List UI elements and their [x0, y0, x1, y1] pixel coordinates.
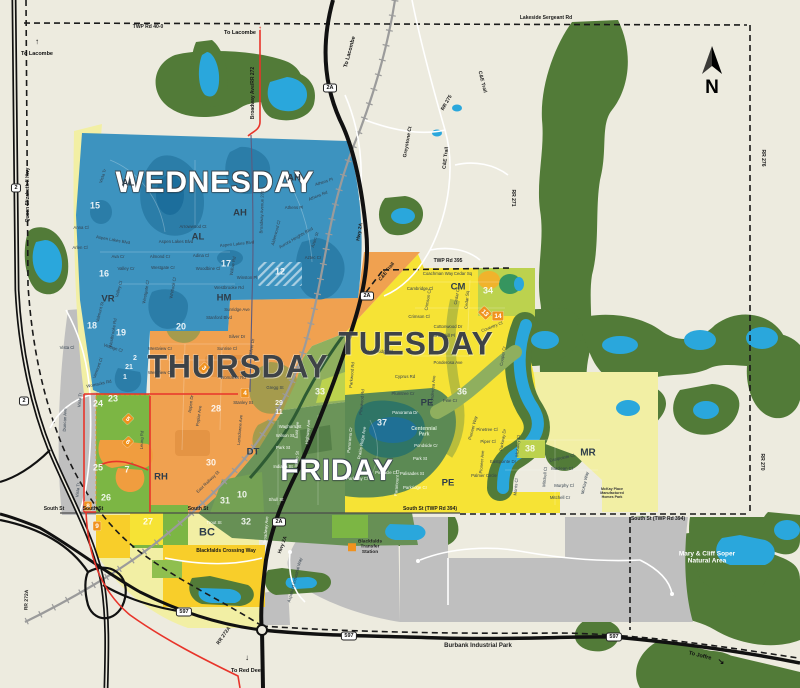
street-label: Womacks Rd — [220, 376, 245, 381]
street-label: Valmont St — [95, 301, 105, 322]
street-label: Prairie Ridge Cl — [363, 350, 393, 355]
road-label: RR 272A — [24, 590, 30, 611]
street-label: Gregg St — [266, 386, 283, 391]
street-label: Sunrise Cl — [217, 347, 237, 352]
zone-number: 28 — [211, 404, 221, 414]
direction-label: To Lacombe — [21, 51, 53, 57]
street-label: Palmer Circle — [471, 474, 497, 479]
street-label: Adina Cl — [193, 254, 209, 259]
arrow-glyph: ↑ — [258, 25, 262, 34]
day-zone-label: WEDNESDAY — [115, 166, 314, 198]
street-label: McAuley Cl — [515, 435, 522, 457]
zone-number: 19 — [116, 328, 126, 338]
road-label: Hwy 2A — [277, 536, 288, 555]
street-label: Valley Cl — [115, 280, 124, 297]
street-label: Cottonwood Dr — [434, 325, 463, 330]
zone-number: 29 — [275, 399, 283, 407]
street-label: Parkwood Rd — [349, 362, 356, 388]
zone-number: 20 — [176, 322, 186, 332]
transfer-station-icon — [348, 543, 356, 551]
street-label: Cedar Sq — [454, 272, 472, 277]
neighborhood-code: VR — [101, 294, 114, 304]
street-label: East Railway St — [196, 470, 221, 494]
street-label: Coachman Way — [423, 272, 453, 277]
street-label: Cedar Cr — [453, 287, 461, 305]
street-label: Sunridge Ave — [224, 308, 249, 313]
road-label: Broadway Ave/RR 272 — [250, 67, 255, 119]
zone-number: 37 — [377, 418, 387, 428]
zone-number: 2 — [133, 354, 137, 362]
street-label: Crimson Cl — [424, 289, 432, 311]
street-label: Almond Cr — [150, 255, 170, 260]
street-label: Trout St — [206, 521, 221, 526]
street-label: Stanford Blvd — [206, 316, 232, 321]
zone-number: 30 — [206, 458, 216, 468]
road-label: C&E Trail — [378, 262, 396, 283]
zone-number: 25 — [93, 463, 103, 473]
street-label: Pioneer Ave — [479, 450, 486, 473]
street-label: Mitchell Cr — [550, 496, 570, 501]
street-label: McKay Way — [580, 471, 589, 494]
street-label: Westbrooke Rd — [214, 286, 244, 291]
neighborhood-code: DT — [247, 447, 260, 457]
street-label: Womacks Rd — [86, 379, 112, 389]
street-label: Cedar Sq — [464, 291, 470, 309]
highway-shield: 2A — [360, 292, 374, 301]
street-label: Vintage Cl — [103, 343, 123, 354]
road-label: TWP Rd 395 — [434, 258, 463, 263]
arrow-glyph: ↘ — [718, 658, 725, 667]
street-label: Wilson St — [276, 434, 294, 439]
direction-label: To Red Deer — [231, 668, 263, 674]
street-label: Pioneer Way — [468, 416, 479, 441]
neighborhood-code: AL — [192, 232, 205, 242]
arrow-glyph: ↓ — [245, 654, 249, 663]
zone-number: 33 — [315, 387, 325, 397]
route-marker: 8 — [84, 501, 92, 510]
street-label: Woodbine Cl — [196, 267, 221, 272]
day-zone-label: FRIDAY — [280, 454, 393, 486]
map-labels: WEDNESDAYTHURSDAYTUESDAYFRIDAYALAHAHALVR… — [0, 0, 800, 688]
street-label: Vista Tr — [75, 483, 81, 498]
street-label: Athens Rd — [308, 190, 328, 202]
direction-label: To Lacombe — [343, 36, 357, 68]
direction-label: To Joffre — [688, 650, 712, 661]
neighborhood-code: PE — [442, 478, 455, 488]
street-label: Westview Cr — [148, 347, 172, 352]
street-label: Cambridge Cl — [407, 287, 433, 292]
street-label: Park St — [276, 446, 290, 451]
direction-label: To Lacombe — [224, 30, 256, 36]
street-label: Broadway Avenue 272 — [259, 190, 265, 233]
road-label: RR 270 — [759, 454, 764, 471]
street-label: Eastpointe Cl — [549, 453, 575, 463]
street-label: Maclean Cl — [551, 467, 573, 472]
street-label: Minto St — [294, 451, 300, 467]
neighborhood-code: PE — [421, 398, 434, 408]
highway-shield: 597 — [176, 608, 192, 617]
street-label: Pine Cr — [443, 399, 457, 404]
street-label: Morris Cl — [513, 478, 519, 496]
road-label: Hwy 2A — [356, 223, 364, 242]
neighborhood-code: AH — [233, 208, 247, 218]
route-marker: 13 — [478, 306, 492, 320]
place-label: McKay Place Manufactured Homes Park — [600, 487, 624, 499]
street-label: Panorama Cr — [347, 427, 354, 453]
zone-number: 32 — [241, 517, 251, 527]
street-label: Aurora Heights Blvd — [278, 226, 313, 249]
zone-number: 31 — [220, 496, 230, 506]
street-label: Shull St — [269, 498, 284, 503]
street-label: Aspelund Industrial Way — [287, 557, 303, 603]
route-marker: 6 — [122, 436, 134, 448]
street-label: Stanley St — [233, 401, 253, 406]
arrow-glyph: ↑ — [35, 38, 39, 47]
street-label: Vista Cl — [60, 346, 75, 351]
street-label: Palisades St — [400, 472, 424, 477]
route-marker: 5 — [122, 413, 134, 425]
zone-number: 18 — [87, 321, 97, 331]
highway-shield: 2 — [19, 397, 29, 406]
highway-shield: 597 — [606, 633, 622, 642]
zone-number: 12 — [275, 267, 285, 277]
street-label: Whitlock Cl — [169, 277, 177, 299]
zone-number: 11 — [275, 408, 282, 416]
street-label: Westview Cr — [148, 371, 172, 376]
neighborhood-code: RH — [154, 472, 168, 482]
street-label: Mitchell Cl — [542, 467, 548, 487]
street-label: Prairie Ridge Ave — [357, 426, 367, 459]
street-label: Waghorn St — [279, 425, 302, 430]
street-label: Aspen Lakes Blvd — [220, 240, 255, 248]
street-label: Silver Dr — [229, 335, 245, 340]
street-label: Aztec Cr — [305, 256, 321, 261]
street-label: Ponderosa Ave — [433, 361, 462, 366]
road-label: RR 272A — [216, 626, 232, 646]
neighborhood-code: CM — [451, 282, 466, 292]
street-label: Parkridge Cr — [403, 486, 427, 491]
zone-number: 1 — [123, 373, 127, 381]
street-label: Athens Pl — [285, 206, 303, 211]
zone-number: 21 — [125, 363, 133, 371]
street-label: Silver Dr — [248, 338, 255, 355]
highway-shield: 2A — [272, 518, 286, 527]
street-label: Plumtree Cr — [392, 392, 415, 397]
road-label: RR 275 — [440, 94, 453, 111]
street-label: Paramount Cl — [394, 470, 401, 497]
road-label: South St (TWP Rd 394) — [631, 516, 685, 521]
road-label: South St (TWP Rd 394) — [403, 506, 457, 511]
route-marker: 4 — [241, 388, 249, 397]
street-label: Pinetree Cl — [476, 428, 497, 433]
street-label: Poplar Ave — [195, 405, 202, 426]
street-label: Vermont Cl — [92, 357, 104, 379]
road-label: South St — [44, 506, 65, 511]
street-label: Ava Cr — [111, 255, 124, 260]
road-label: South St — [188, 506, 209, 511]
street-label: Athens Pl — [315, 177, 334, 187]
route-marker: 9 — [93, 521, 101, 530]
north-arrow-icon — [695, 44, 729, 78]
street-label: Parkway Cl — [346, 477, 368, 482]
zone-number: 24 — [93, 399, 103, 409]
route-marker: 14 — [492, 311, 503, 320]
highway-shield: 2A — [323, 84, 337, 93]
street-label: Pondside Cr — [414, 444, 438, 449]
road-label: Lakeside Sergeant Rd — [520, 15, 572, 20]
zone-number: 26 — [101, 493, 111, 503]
street-label: East Ave — [294, 421, 300, 438]
street-label: Panorama Dr — [392, 411, 418, 416]
street-label: Pinewood Rd — [359, 389, 366, 415]
street-label: Vista Tr — [77, 393, 83, 408]
street-label: Coventry Cl — [481, 321, 504, 334]
zone-number: 27 — [143, 517, 153, 527]
street-label: Alderwood Cl — [270, 220, 281, 246]
road-label: Greystone Ct — [403, 126, 414, 158]
neighborhood-code: HM — [217, 293, 232, 303]
street-label: Aspen Lakes Blvd — [159, 240, 193, 245]
street-label: Westgate Cr — [151, 266, 175, 271]
place-label: Centennial Park — [411, 427, 437, 438]
street-label: Lansdowne Ave — [236, 415, 243, 446]
road-label: RR 276 — [760, 150, 765, 167]
zone-number: 36 — [457, 387, 467, 397]
zone-number: 38 — [525, 444, 535, 454]
street-label: Parkway Dr — [499, 429, 507, 452]
blackfalds-collection-zone-map: WEDNESDAYTHURSDAYTUESDAYFRIDAYALAHAHALVR… — [0, 0, 800, 688]
zone-number: 7 — [124, 465, 129, 475]
route-marker: 3 — [198, 362, 210, 374]
highway-shield: 597 — [341, 632, 357, 641]
road-label: TWP Rd 40-0 — [133, 24, 163, 29]
compass-rose: N — [692, 44, 732, 104]
zone-number: 15 — [90, 201, 100, 211]
neighborhood-code: BC — [199, 526, 215, 538]
street-label: Westbrooke Rd — [108, 318, 118, 348]
street-label: Westgate Cl — [142, 280, 151, 304]
neighborhood-code: AH — [287, 173, 301, 183]
street-label: Vista Tr — [99, 168, 108, 183]
street-label: Valley Cr — [117, 267, 134, 272]
street-label: Crimson Cl — [408, 315, 429, 320]
street-label: Highway Ave — [305, 419, 312, 444]
compass-north-label: N — [692, 77, 732, 99]
road-label: Queen Elizabeth II Hwy — [25, 168, 30, 223]
street-label: Winston Pl — [237, 276, 258, 281]
street-label: Broadway Ave — [262, 516, 269, 544]
street-label: Duncan Ave — [62, 408, 67, 431]
place-label: Burbank Industrial Park — [444, 642, 512, 648]
zone-number: 10 — [237, 490, 247, 500]
street-label: Indiana St — [273, 465, 292, 470]
street-label: Murphy Cl — [554, 484, 574, 489]
street-label: Aztec St — [310, 232, 319, 249]
street-label: Leung Rd — [139, 431, 144, 450]
day-zone-label: THURSDAY — [148, 350, 329, 385]
road-label: C&E Trail — [442, 147, 450, 170]
street-label: Pinnacle Cl — [375, 471, 397, 476]
street-label: Cooper Cr — [499, 346, 507, 366]
place-label: Mary & Cliff Soper Natural Area — [679, 550, 735, 564]
neighborhood-code: AL — [122, 178, 135, 188]
zone-number: 34 — [483, 286, 493, 296]
highway-shield: 2 — [11, 184, 21, 193]
day-zone-label: TUESDAY — [338, 327, 493, 362]
street-label: Ponderosa Ave — [429, 375, 436, 404]
street-label: Anna Cl — [73, 226, 88, 231]
road-label: Blackfalds Crossing Way — [196, 548, 256, 553]
street-label: Aspen Lakes Blvd — [96, 235, 131, 246]
zone-number: 17 — [221, 259, 231, 269]
road-label: C&E Trail — [477, 71, 488, 94]
zone-number: 23 — [108, 394, 118, 404]
road-label: South St — [83, 506, 104, 511]
street-label: Eastpointe Dr — [490, 460, 516, 465]
zone-number: 16 — [99, 269, 109, 279]
street-label: Willow Rd — [229, 256, 237, 276]
street-label: Aspen Dr — [187, 395, 194, 413]
road-label: RR 271 — [510, 190, 515, 207]
street-label: Piper Cl — [480, 440, 495, 445]
street-label: Cyprus Rd — [395, 375, 415, 380]
place-label: Blackfalds Transfer Station — [348, 539, 382, 555]
street-label: Arrowwood Ct — [180, 225, 207, 230]
street-label: Churchill Pl — [433, 334, 455, 339]
street-label: Arlen Cl — [72, 246, 87, 251]
street-label: Park St — [413, 457, 427, 462]
neighborhood-code: MR — [580, 448, 596, 459]
